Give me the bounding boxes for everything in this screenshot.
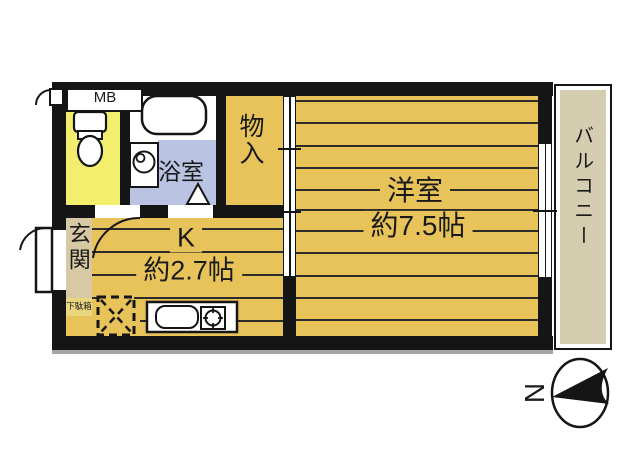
western-room-label: 洋室 [380,176,450,206]
bathtub [142,96,206,134]
balcony-label: バルコニー [570,125,592,250]
washer-icon-inner [137,154,145,162]
storage-label: 物入 [236,113,263,167]
front-door-leaf [36,228,52,292]
toilet-bowl [78,136,102,166]
toilet-tank [74,112,106,132]
meter-box-label: MB [70,90,140,106]
toilet-door-arc [93,218,140,258]
compass-north-label: N [520,378,550,408]
kitchen-sink [156,306,198,328]
meter-box-door-arc [36,90,50,105]
shoe-box-label: 下駄箱 [66,302,92,311]
kitchen-label: K [170,223,202,252]
bath-label: 浴室 [158,160,204,185]
meter-box-door-leaf [50,89,63,105]
entrance-label: 玄関 [66,222,90,274]
floorplan-canvas: MB 浴室 物入 洋室 約7.5帖 K 約2.7帖 玄関 下駄箱 バルコニー N [0,0,640,460]
bath-door-triangle [187,184,209,204]
western-room-size: 約7.5帖 [364,211,473,241]
kitchen-size: 約2.7帖 [136,256,242,285]
